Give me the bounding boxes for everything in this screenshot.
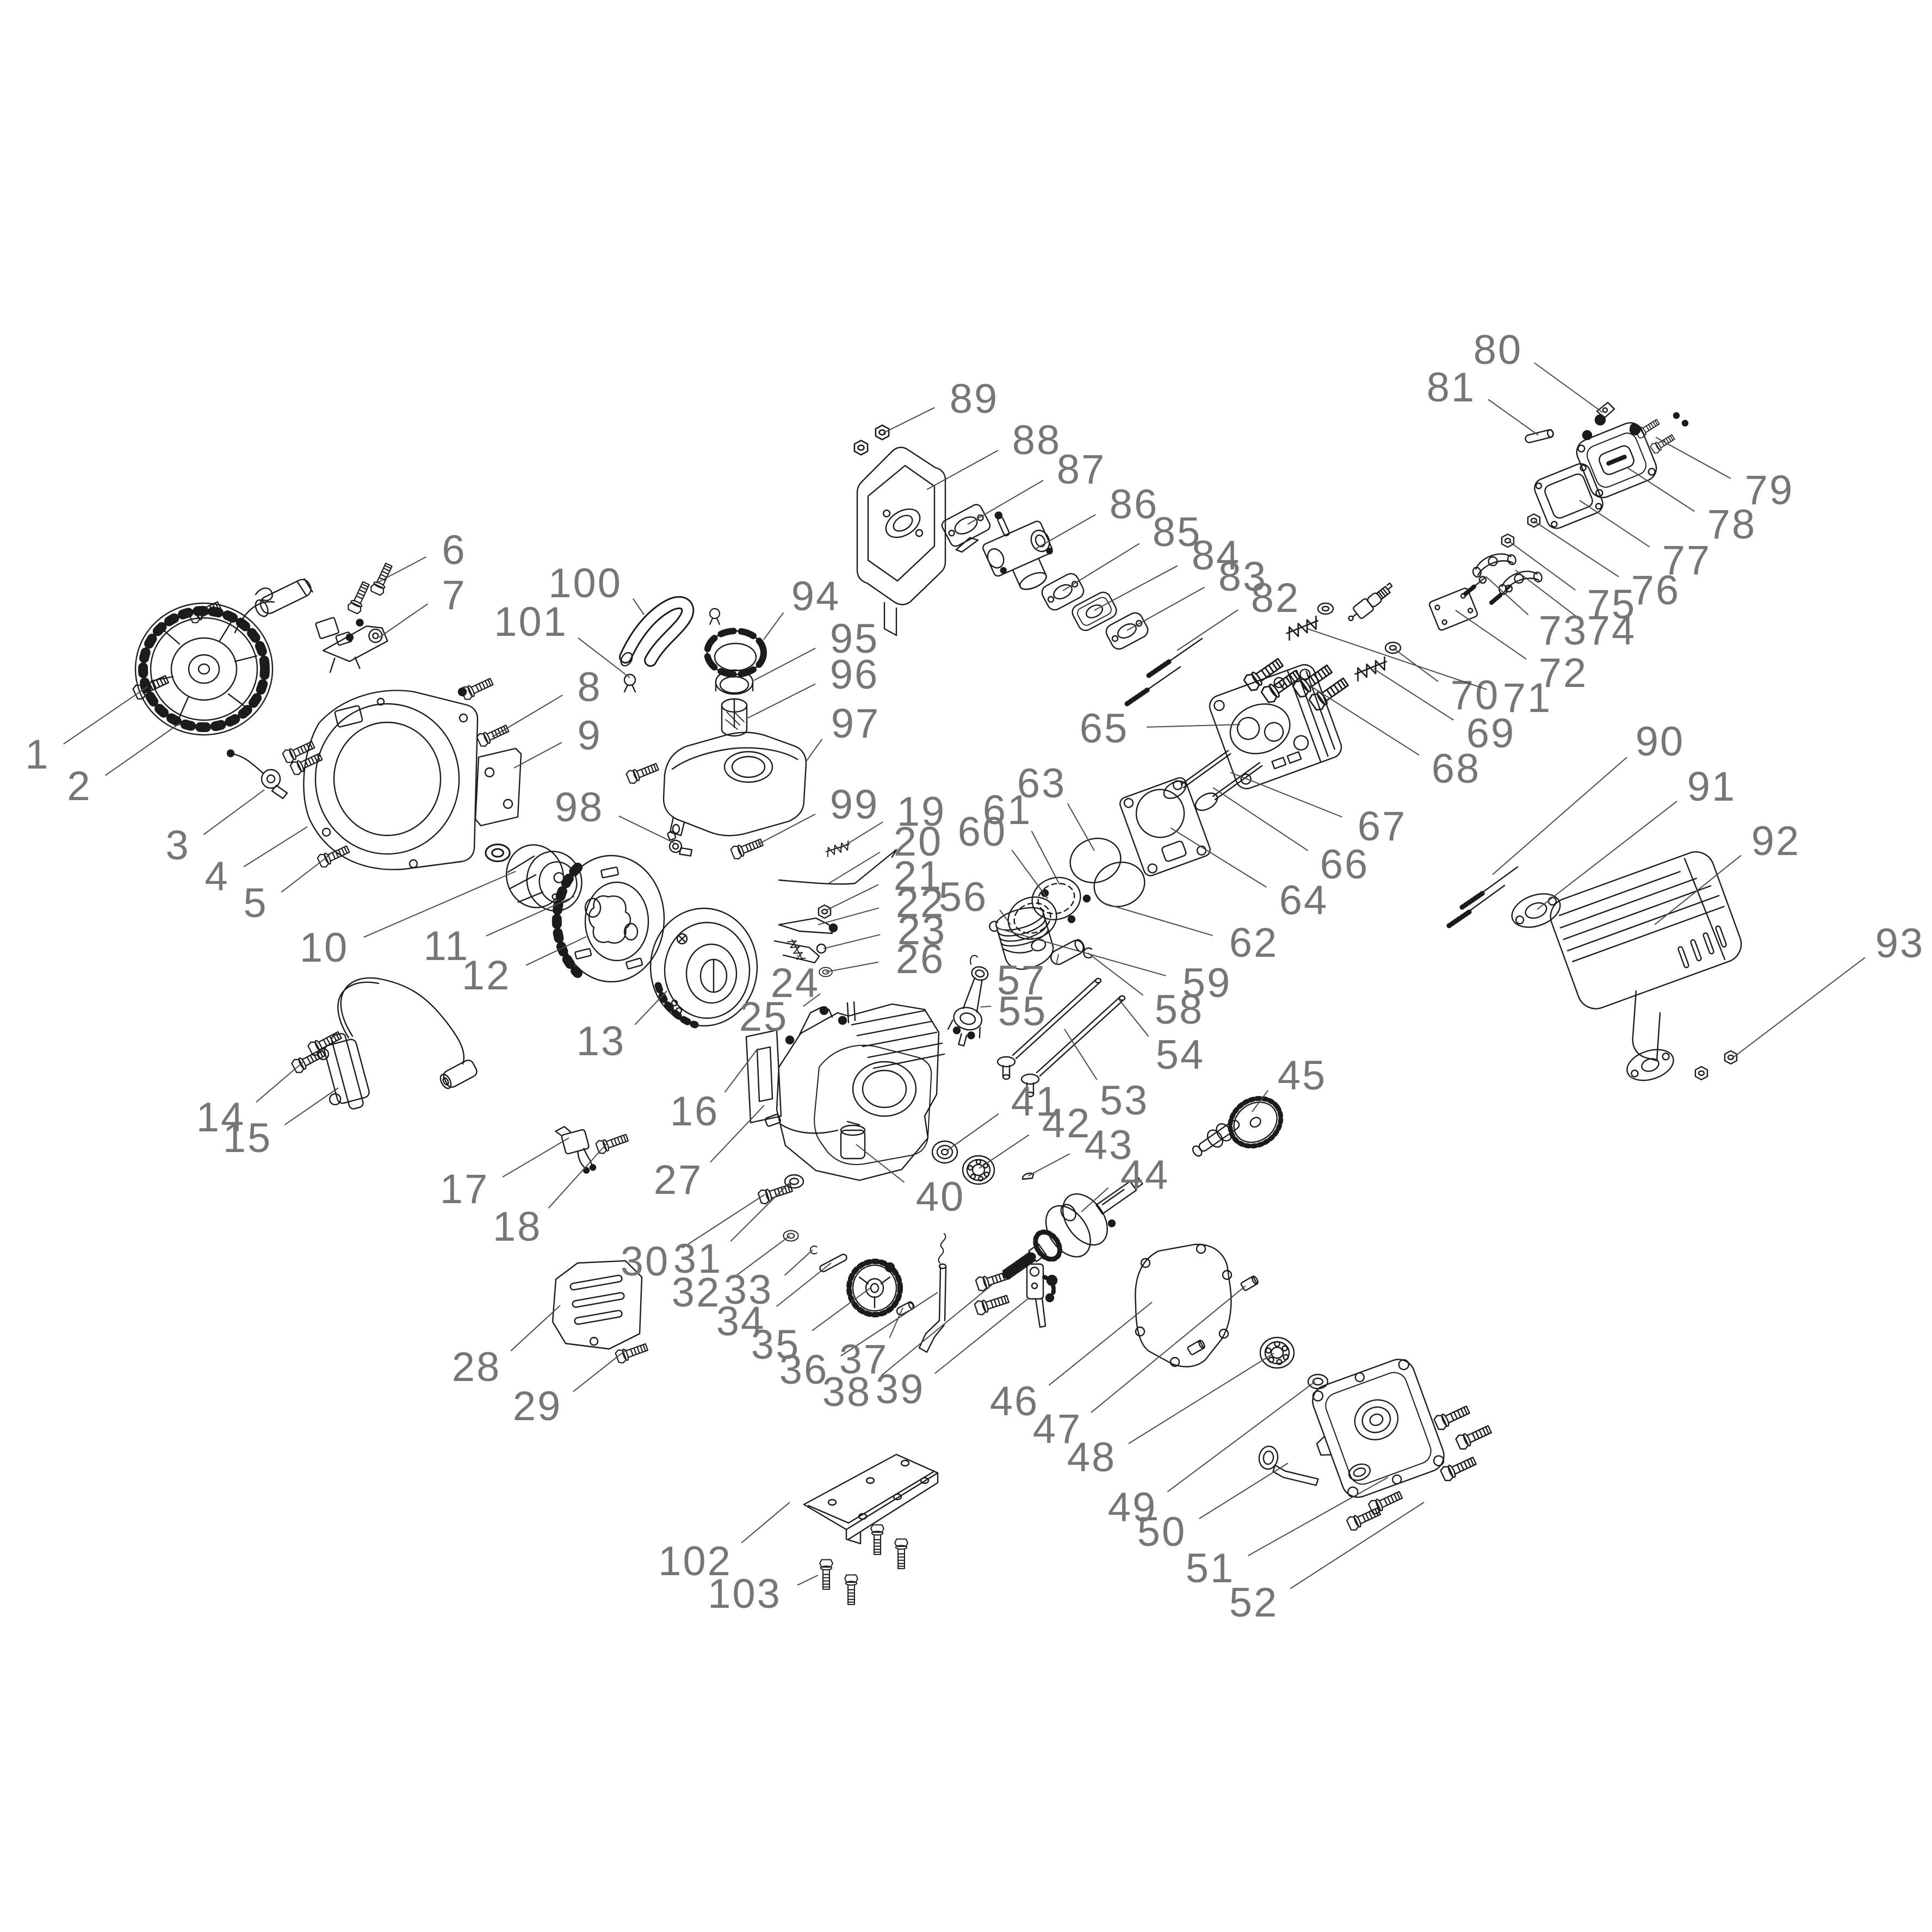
leader-line-92 xyxy=(1655,856,1741,925)
crankcase-cover-drawing xyxy=(1299,1355,1448,1505)
callout-number-16: 16 xyxy=(670,1088,720,1135)
leader-line-83 xyxy=(1127,587,1204,630)
leader-line-3 xyxy=(203,790,264,834)
callout-number-30: 30 xyxy=(621,1239,670,1285)
side-baffle-drawing xyxy=(746,1030,781,1123)
callout-number-51: 51 xyxy=(1186,1545,1235,1592)
callout-number-85: 85 xyxy=(1153,509,1202,555)
callout-number-25: 25 xyxy=(739,994,789,1040)
leader-line-72 xyxy=(1456,610,1526,659)
leader-line-48 xyxy=(1129,1353,1274,1444)
leader-line-94 xyxy=(764,612,783,640)
leader-line-2 xyxy=(106,723,179,776)
callout-number-94: 94 xyxy=(791,573,841,620)
callout-number-7: 7 xyxy=(442,572,466,618)
piston-rings-drawing xyxy=(1002,832,1150,945)
callout-number-36: 36 xyxy=(779,1347,829,1393)
air-cleaner-drawing xyxy=(854,425,945,635)
leader-line-57 xyxy=(1056,954,1058,965)
base-plate-drawing xyxy=(804,1454,938,1605)
callout-number-97: 97 xyxy=(831,701,881,747)
leader-line-87 xyxy=(968,480,1043,524)
leader-line-89 xyxy=(883,407,934,433)
leader-line-71 xyxy=(1308,629,1487,690)
carburetor-drawing xyxy=(949,498,1064,610)
callout-number-89: 89 xyxy=(950,376,999,422)
leader-line-50 xyxy=(1199,1463,1288,1519)
callout-number-42: 42 xyxy=(1042,1100,1092,1147)
engine-exploded-diagram: 1234567891011121314151617181920212223242… xyxy=(0,0,1932,1932)
leader-line-100 xyxy=(633,599,644,615)
leader-line-102 xyxy=(741,1502,790,1543)
callout-number-38: 38 xyxy=(822,1369,872,1415)
callout-number-99: 99 xyxy=(830,782,880,828)
callout-number-10: 10 xyxy=(300,925,349,971)
callout-number-26: 26 xyxy=(896,936,945,982)
ball-bearing-drawing xyxy=(1260,1337,1294,1368)
leader-line-6 xyxy=(376,557,426,583)
leader-line-1 xyxy=(64,686,148,744)
leader-line-33 xyxy=(785,1250,813,1275)
spark-plug-drawing xyxy=(1345,580,1396,625)
leader-line-97 xyxy=(806,739,822,761)
stop-switch-drawing xyxy=(555,1122,629,1178)
callout-number-88: 88 xyxy=(1012,417,1062,463)
side-plate-drawing xyxy=(475,722,521,826)
cam-gear-drawing xyxy=(849,1261,900,1315)
leader-line-41 xyxy=(946,1114,999,1151)
leader-line-43 xyxy=(1028,1154,1069,1176)
leader-line-98 xyxy=(619,816,674,843)
leader-line-84 xyxy=(1094,566,1178,610)
fuel-cap-drawing xyxy=(707,631,764,674)
leader-line-28 xyxy=(511,1305,560,1351)
cylinder-head-drawing xyxy=(1206,662,1344,792)
leader-line-47 xyxy=(1091,1286,1246,1413)
callout-number-6: 6 xyxy=(442,527,466,573)
callout-number-87: 87 xyxy=(1057,447,1106,493)
leader-line-62 xyxy=(1106,904,1213,936)
leader-line-55 xyxy=(981,1006,991,1007)
hose-clip-drawing xyxy=(710,609,720,624)
cooling-fan-drawing xyxy=(557,856,664,982)
callout-number-28: 28 xyxy=(452,1344,501,1390)
callout-number-79: 79 xyxy=(1745,467,1794,513)
callout-number-103: 103 xyxy=(708,1571,782,1617)
connecting-rod-drawing xyxy=(945,953,1000,1049)
leader-line-90 xyxy=(1493,757,1627,875)
callout-number-59: 59 xyxy=(1182,960,1232,1006)
callout-number-53: 53 xyxy=(1100,1078,1149,1124)
callout-number-3: 3 xyxy=(165,822,190,869)
leader-line-65 xyxy=(1147,725,1240,727)
callout-number-86: 86 xyxy=(1110,481,1159,528)
valve-drawing xyxy=(1161,751,1262,814)
fuel-tank-drawing xyxy=(618,603,806,862)
head-gasket-drawing xyxy=(1118,776,1212,878)
leader-line-46 xyxy=(1049,1302,1152,1385)
callout-number-29: 29 xyxy=(513,1383,562,1429)
recoil-starter-drawing xyxy=(132,577,324,776)
callout-number-75: 75 xyxy=(1587,581,1637,628)
callout-number-12: 12 xyxy=(462,952,511,999)
leader-line-13 xyxy=(635,991,667,1025)
callout-number-50: 50 xyxy=(1137,1509,1187,1555)
leader-line-40 xyxy=(856,1144,905,1182)
leader-line-85 xyxy=(1063,543,1140,591)
leader-line-15 xyxy=(285,1088,339,1125)
leader-line-103 xyxy=(797,1575,818,1585)
insulator-drawing xyxy=(1070,590,1119,633)
callout-number-92: 92 xyxy=(1751,818,1801,864)
callout-number-62: 62 xyxy=(1229,920,1279,966)
leader-line-79 xyxy=(1656,437,1731,479)
callout-number-45: 45 xyxy=(1278,1052,1327,1099)
leader-line-52 xyxy=(1290,1502,1424,1589)
leader-line-93 xyxy=(1732,957,1865,1058)
leader-line-81 xyxy=(1488,400,1538,436)
callout-number-17: 17 xyxy=(440,1166,490,1212)
callout-layer: 1234567891011121314151617181920212223242… xyxy=(25,327,1924,1626)
ball-bearing-drawing xyxy=(932,1141,957,1163)
fan-cover-drawing xyxy=(304,676,494,870)
callout-number-91: 91 xyxy=(1687,764,1737,810)
callout-number-9: 9 xyxy=(577,713,602,759)
head-cover-drawing xyxy=(1525,403,1688,531)
dowel-pin-drawing xyxy=(1241,1275,1259,1291)
leader-line-26 xyxy=(826,962,878,972)
leader-line-60 xyxy=(1012,850,1048,899)
callout-number-40: 40 xyxy=(916,1174,965,1220)
leader-line-64 xyxy=(1171,828,1266,887)
leader-line-23 xyxy=(823,934,880,949)
governor-shaft-drawing xyxy=(919,1234,946,1352)
callout-number-63: 63 xyxy=(1017,760,1067,807)
leader-line-39 xyxy=(935,1298,1029,1373)
callout-number-27: 27 xyxy=(654,1157,703,1203)
leader-line-53 xyxy=(1064,1029,1097,1080)
callout-number-46: 46 xyxy=(990,1378,1039,1425)
callout-number-15: 15 xyxy=(223,1115,273,1161)
callout-number-52: 52 xyxy=(1229,1580,1279,1626)
leader-line-78 xyxy=(1627,468,1694,511)
speed-control-lever-drawing xyxy=(1027,1264,1057,1327)
callout-number-73: 73 xyxy=(1539,608,1588,654)
leader-line-61 xyxy=(1032,831,1060,884)
leader-line-82 xyxy=(1177,610,1238,651)
valve-retainer-drawing xyxy=(1318,603,1333,614)
callout-number-57: 57 xyxy=(997,957,1046,1004)
ignition-coil-drawing xyxy=(291,978,479,1114)
leader-line-99 xyxy=(758,814,815,844)
leader-line-77 xyxy=(1580,500,1650,547)
leader-line-14 xyxy=(256,1062,304,1102)
fuel-strainer-drawing xyxy=(722,699,747,736)
oil-sensor-drawing xyxy=(227,750,287,798)
callout-number-32: 32 xyxy=(672,1270,721,1316)
callout-number-77: 77 xyxy=(1662,537,1712,584)
leader-line-42 xyxy=(979,1135,1029,1168)
leader-line-58 xyxy=(1088,953,1143,995)
dowel-pin-drawing xyxy=(1187,1340,1206,1355)
leader-line-21 xyxy=(826,884,878,911)
callout-number-96: 96 xyxy=(830,652,880,698)
leader-line-16 xyxy=(725,1049,758,1092)
leader-line-96 xyxy=(748,684,815,719)
callout-number-2: 2 xyxy=(67,763,91,809)
callout-number-5: 5 xyxy=(243,880,268,926)
cover-gasket-drawing xyxy=(1532,461,1606,531)
callout-number-65: 65 xyxy=(1080,705,1129,752)
callout-number-8: 8 xyxy=(577,664,602,710)
callout-number-13: 13 xyxy=(577,1018,626,1064)
leader-line-7 xyxy=(379,604,428,637)
callout-number-81: 81 xyxy=(1427,364,1476,411)
muffler-drawing xyxy=(1449,847,1747,1086)
callout-number-54: 54 xyxy=(1156,1032,1205,1078)
callout-number-39: 39 xyxy=(876,1366,925,1413)
leader-line-69 xyxy=(1374,669,1454,720)
fuel-valve-drawing xyxy=(665,827,693,862)
callout-number-4: 4 xyxy=(205,853,229,900)
leader-line-20 xyxy=(829,852,880,883)
camshaft-drawing xyxy=(1187,1089,1290,1180)
callout-number-67: 67 xyxy=(1358,803,1407,850)
callout-number-72: 72 xyxy=(1539,650,1588,696)
callout-number-1: 1 xyxy=(25,732,49,778)
carb-studs-drawing xyxy=(1127,639,1202,704)
oil-seal-drawing xyxy=(1308,1374,1328,1389)
callout-number-44: 44 xyxy=(1120,1152,1170,1198)
starter-cup-drawing xyxy=(499,834,588,922)
exploded-diagram-page: 1234567891011121314151617181920212223242… xyxy=(0,0,1932,1932)
leader-line-54 xyxy=(1118,999,1149,1037)
guide-plate-drawing xyxy=(1428,587,1478,631)
callout-number-18: 18 xyxy=(493,1204,542,1250)
leader-line-5 xyxy=(281,855,330,892)
leader-line-29 xyxy=(573,1349,627,1391)
callout-number-101: 101 xyxy=(494,599,568,645)
callout-number-80: 80 xyxy=(1473,327,1523,373)
leader-line-8 xyxy=(492,695,562,737)
case-gasket-drawing xyxy=(1135,1244,1231,1367)
callout-number-56: 56 xyxy=(939,874,988,920)
leader-line-34 xyxy=(777,1263,831,1306)
leader-line-49 xyxy=(1167,1382,1315,1492)
intake-gasket-drawing xyxy=(1104,610,1150,652)
callout-number-93: 93 xyxy=(1875,920,1925,967)
leader-line-80 xyxy=(1534,363,1602,412)
piston-pin-drawing xyxy=(1049,938,1087,967)
ball-bearing-drawing xyxy=(963,1156,994,1184)
leader-line-4 xyxy=(244,827,307,867)
callout-number-98: 98 xyxy=(555,784,604,831)
leader-line-17 xyxy=(503,1138,569,1177)
dipstick-drawing xyxy=(1256,1445,1322,1485)
leader-line-24 xyxy=(797,955,798,956)
leader-line-88 xyxy=(927,450,998,490)
callout-number-48: 48 xyxy=(1067,1434,1117,1481)
callout-number-90: 90 xyxy=(1636,719,1685,765)
dowel-pin-drawing xyxy=(1525,429,1554,443)
